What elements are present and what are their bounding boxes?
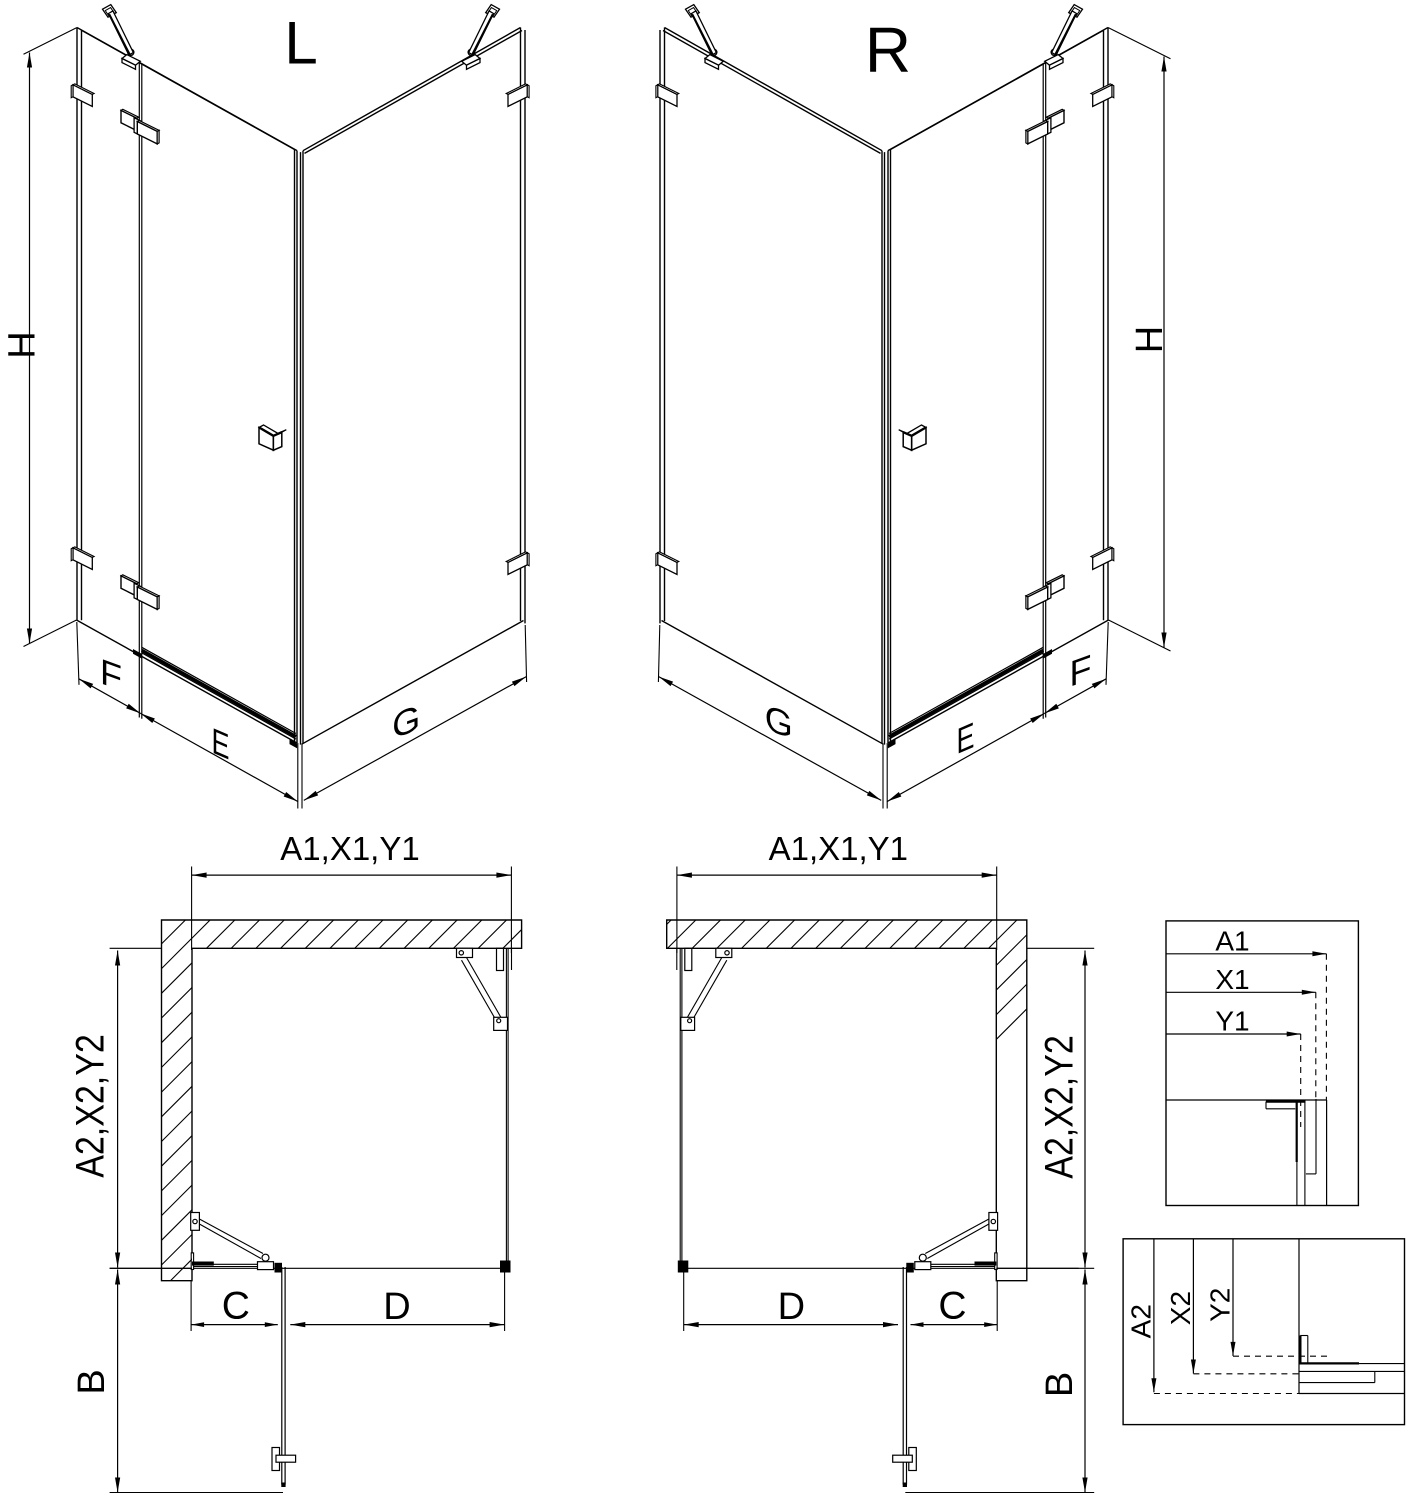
- svg-text:A2: A2: [1126, 1304, 1157, 1338]
- svg-text:A1: A1: [1215, 926, 1249, 957]
- svg-text:C: C: [938, 1284, 966, 1327]
- svg-text:E: E: [956, 714, 974, 762]
- svg-text:H: H: [2, 331, 44, 358]
- svg-text:B: B: [1039, 1372, 1081, 1397]
- svg-text:D: D: [383, 1286, 410, 1328]
- svg-text:A1,X1,Y1: A1,X1,Y1: [769, 830, 908, 867]
- svg-text:C: C: [222, 1284, 250, 1327]
- svg-text:H: H: [1129, 326, 1171, 353]
- svg-text:D: D: [778, 1286, 805, 1328]
- svg-text:R: R: [865, 14, 911, 86]
- svg-text:Y1: Y1: [1215, 1006, 1249, 1037]
- svg-text:A2,X2,Y2: A2,X2,Y2: [67, 1034, 112, 1178]
- svg-text:L: L: [284, 10, 317, 77]
- svg-text:F: F: [100, 650, 122, 699]
- svg-text:E: E: [211, 719, 229, 767]
- svg-text:B: B: [71, 1369, 113, 1394]
- svg-text:X2: X2: [1165, 1291, 1196, 1325]
- svg-text:Y2: Y2: [1205, 1288, 1236, 1322]
- svg-text:F: F: [1070, 646, 1092, 695]
- svg-text:A1,X1,Y1: A1,X1,Y1: [280, 830, 419, 867]
- svg-text:X1: X1: [1215, 964, 1249, 995]
- svg-text:A2,X2,Y2: A2,X2,Y2: [1036, 1035, 1081, 1179]
